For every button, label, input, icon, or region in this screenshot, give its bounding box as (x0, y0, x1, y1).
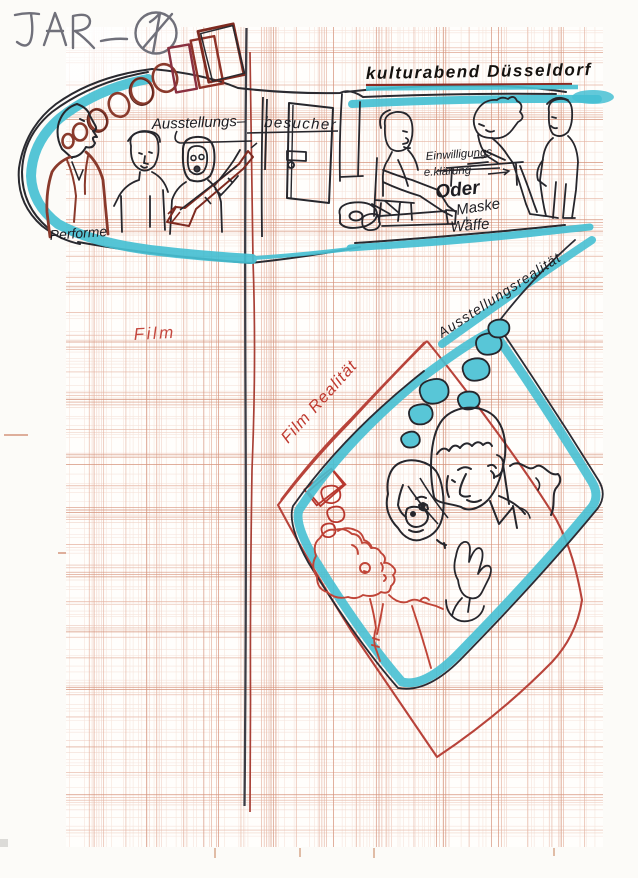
svg-text:Ausstellungs–: Ausstellungs– (151, 113, 247, 133)
svg-text:e.klärung: e.klärung (424, 165, 472, 179)
svg-text:Wäffe: Wäffe (450, 216, 491, 236)
svg-text:Film: Film (133, 323, 176, 344)
svg-text:kulturabend Düsseldorf: kulturabend Düsseldorf (366, 60, 593, 83)
